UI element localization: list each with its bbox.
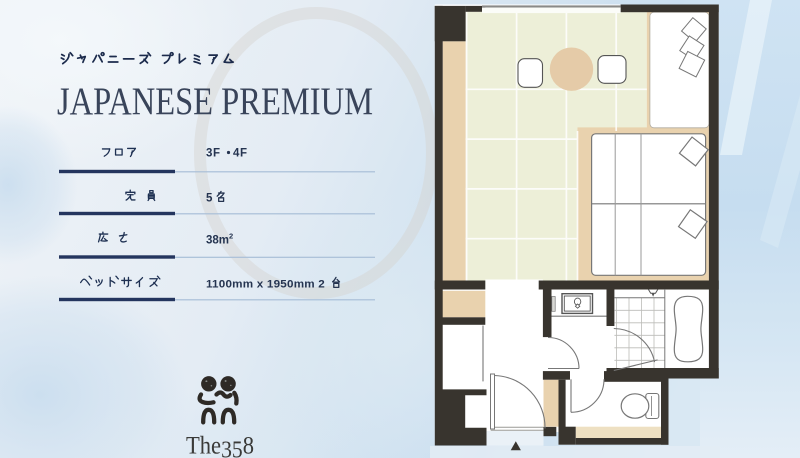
svg-text:4F: 4F (233, 148, 248, 160)
svg-text:The358: The358 (186, 433, 254, 458)
svg-text:38m: 38m (206, 235, 229, 247)
svg-text:3F: 3F (206, 148, 221, 160)
svg-text:2: 2 (229, 232, 233, 241)
svg-text:1100mm x 1950mm 2: 1100mm x 1950mm 2 (206, 279, 325, 291)
svg-text:JAPANESE PREMIUM: JAPANESE PREMIUM (57, 79, 373, 123)
svg-text:5: 5 (206, 193, 213, 205)
